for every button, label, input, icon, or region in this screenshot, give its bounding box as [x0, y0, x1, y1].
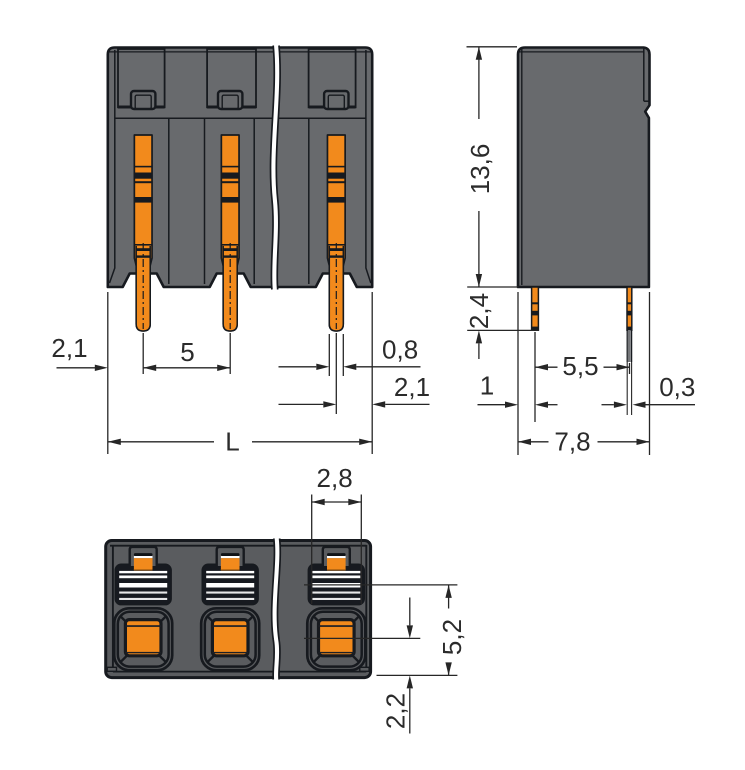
svg-text:L: L — [225, 427, 239, 457]
svg-text:2,8: 2,8 — [317, 463, 353, 493]
svg-text:2,1: 2,1 — [51, 333, 87, 363]
svg-text:5,5: 5,5 — [562, 351, 598, 381]
svg-text:7,8: 7,8 — [554, 426, 590, 456]
svg-text:0,8: 0,8 — [382, 334, 418, 364]
svg-text:5,2: 5,2 — [437, 619, 467, 655]
svg-text:2,1: 2,1 — [394, 372, 430, 402]
svg-text:13,6: 13,6 — [465, 144, 495, 195]
svg-text:5: 5 — [180, 337, 194, 367]
svg-text:1: 1 — [480, 371, 494, 401]
svg-text:0,3: 0,3 — [659, 372, 695, 402]
svg-text:2,4: 2,4 — [464, 293, 494, 329]
svg-text:2,2: 2,2 — [380, 693, 410, 729]
